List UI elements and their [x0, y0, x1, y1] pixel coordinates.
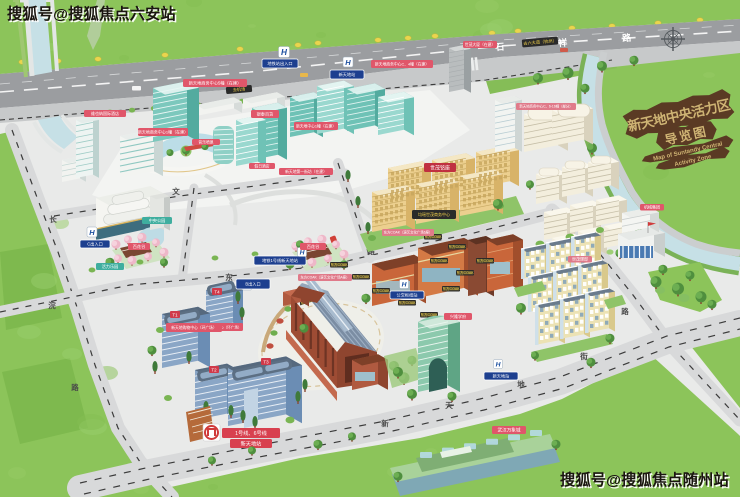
- svg-text:C出入口: C出入口: [87, 241, 103, 248]
- svg-text:活力乐园: 活力乐园: [102, 263, 119, 270]
- svg-text:音乐喷泉: 音乐喷泉: [198, 139, 213, 144]
- svg-text:搜狐号@搜狐焦点随州站: 搜狐号@搜狐焦点随州站: [560, 471, 729, 489]
- svg-text:银泰百货: 银泰百货: [257, 111, 274, 118]
- svg-text:长: 长: [49, 214, 57, 224]
- svg-text:武汉万象城: 武汉万象城: [498, 427, 521, 434]
- svg-text:东方COAK: 东方COAK: [398, 300, 416, 305]
- svg-text:H: H: [345, 58, 351, 67]
- svg-text:公交枢纽站: 公交枢纽站: [397, 292, 418, 299]
- svg-text:新天地购物中心（环广场）: 新天地购物中心（环广场）: [171, 325, 217, 330]
- svg-text:新天地站: 新天地站: [339, 71, 356, 78]
- svg-text:中央公园: 中央公园: [149, 217, 166, 224]
- svg-text:世茂璟邸: 世茂璟邸: [572, 256, 588, 262]
- svg-text:东方COAK（演艺文化广场A座）: 东方COAK（演艺文化广场A座）: [300, 275, 349, 280]
- svg-text:假日酒店: 假日酒店: [254, 163, 269, 168]
- svg-text:新: 新: [381, 418, 389, 428]
- svg-text:祥: 祥: [558, 37, 568, 49]
- svg-text:1号线、6号线: 1号线、6号线: [235, 429, 267, 437]
- svg-text:新天地商务中心5幢（在建）: 新天地商务中心5幢（在建）: [189, 80, 242, 87]
- svg-text:路: 路: [71, 382, 79, 392]
- svg-text:世茂铭座: 世茂铭座: [430, 164, 450, 171]
- svg-text:均瑶世茂商务中心: 均瑶世茂商务中心: [418, 211, 450, 217]
- svg-text:东方COAK: 东方COAK: [476, 258, 494, 263]
- svg-text:T4: T4: [214, 290, 220, 295]
- svg-text:东方COAK: 东方COAK: [456, 270, 474, 275]
- svg-text:机械集团: 机械集团: [644, 204, 660, 210]
- svg-text:地铁站出入口: 地铁站出入口: [267, 60, 292, 67]
- svg-text:街: 街: [579, 351, 588, 361]
- svg-text:T3: T3: [263, 360, 269, 365]
- svg-text:东方COAK: 东方COAK: [352, 274, 370, 279]
- svg-text:B出入口: B出入口: [245, 281, 260, 288]
- svg-text:新天地商务中心C、6-16幢（部分）: 新天地商务中心C、6-16幢（部分）: [519, 104, 572, 109]
- svg-text:T1: T1: [172, 313, 178, 318]
- svg-text:百花谷: 百花谷: [133, 243, 146, 250]
- svg-text:东方COAK: 东方COAK: [448, 244, 466, 249]
- svg-text:东方COAK: 东方COAK: [442, 286, 460, 291]
- svg-text:新天地站: 新天地站: [241, 439, 262, 447]
- svg-text:东方COAK: 东方COAK: [372, 288, 390, 293]
- svg-text:地铁1号线新天地站: 地铁1号线新天地站: [262, 257, 298, 264]
- svg-text:新天地第一街坊（在建）: 新天地第一街坊（在建）: [285, 169, 327, 174]
- svg-text:东方COAK: 东方COAK: [430, 258, 448, 263]
- svg-text:H: H: [281, 48, 288, 57]
- svg-text:新天地中心1幢（在建）: 新天地中心1幢（在建）: [296, 123, 336, 128]
- svg-text:文: 文: [172, 186, 180, 196]
- svg-text:东: 东: [225, 272, 233, 282]
- svg-text:地: 地: [517, 379, 525, 389]
- svg-text:新天地商务中心1幢（在建）: 新天地商务中心1幢（在建）: [138, 128, 188, 134]
- svg-text:H: H: [402, 281, 407, 288]
- svg-text:H: H: [89, 228, 95, 237]
- svg-text:搜狐号@搜狐焦点六安站: 搜狐号@搜狐焦点六安站: [7, 5, 176, 23]
- svg-text:百花谷: 百花谷: [307, 243, 320, 250]
- svg-text:东方COAK: 东方COAK: [330, 262, 348, 267]
- svg-text:东方COAK（演艺文化广场6座）: 东方COAK（演艺文化广场6座）: [384, 230, 433, 235]
- svg-text:兴隆学府: 兴隆学府: [450, 313, 466, 319]
- svg-text:浣: 浣: [48, 300, 56, 310]
- svg-text:天: 天: [445, 401, 453, 410]
- svg-text:维也纳国际酒店: 维也纳国际酒店: [91, 110, 119, 116]
- svg-text:新天地商务中心C、4幢（在建）: 新天地商务中心C、4幢（在建）: [375, 61, 429, 66]
- svg-text:新天地站: 新天地站: [493, 373, 510, 380]
- svg-text:H: H: [496, 361, 501, 368]
- svg-text:T2: T2: [211, 368, 217, 373]
- svg-text:世茂大厦（在建）: 世茂大厦（在建）: [465, 42, 495, 47]
- svg-text:路: 路: [621, 306, 629, 316]
- svg-text:H: H: [300, 249, 305, 256]
